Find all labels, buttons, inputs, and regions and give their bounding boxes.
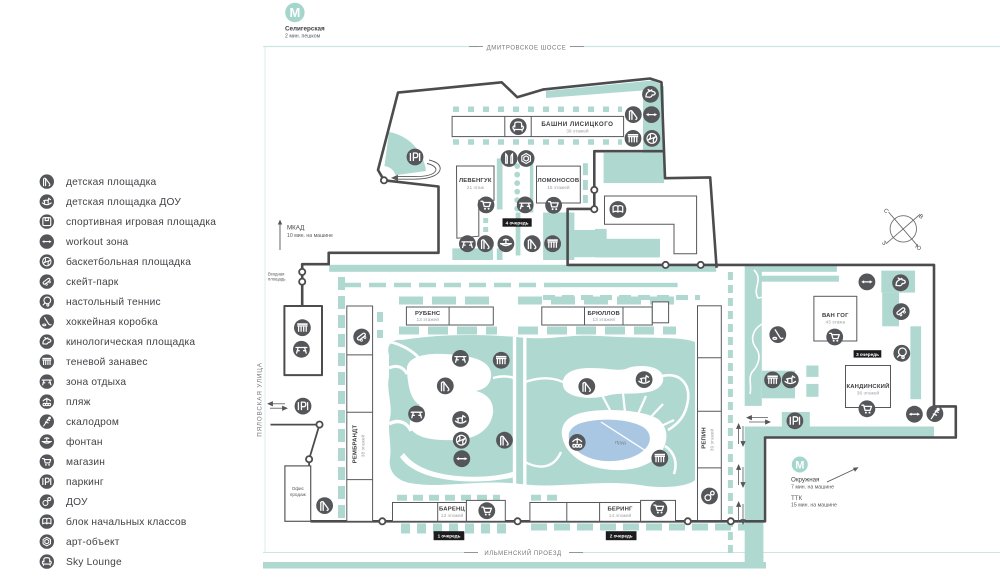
svg-text:РЕПИН: РЕПИН — [702, 427, 708, 449]
svg-text:БАРЕНЦ: БАРЕНЦ — [439, 507, 465, 513]
svg-text:фонтан: фонтан — [66, 436, 103, 448]
svg-text:ЛОМОНОСОВ: ЛОМОНОСОВ — [538, 178, 580, 184]
svg-text:баскетбольная площадка: баскетбольная площадка — [66, 256, 191, 268]
svg-text:1 очередь: 1 очередь — [438, 534, 461, 539]
svg-text:БАШНИ ЛИСИЦКОГО: БАШНИ ЛИСИЦКОГО — [541, 121, 613, 128]
svg-text:ИЛЬМЕНСКИЙ ПРОЕЗД: ИЛЬМЕНСКИЙ ПРОЕЗД — [484, 549, 561, 557]
svg-text:детская площадка: детская площадка — [66, 177, 157, 188]
svg-text:КАНДИНСКИЙ: КАНДИНСКИЙ — [846, 382, 889, 390]
svg-text:21 этаж: 21 этаж — [467, 185, 485, 191]
svg-text:БРЮЛЛОВ: БРЮЛЛОВ — [587, 311, 620, 317]
svg-text:паркинг: паркинг — [66, 477, 104, 488]
svg-text:15 мин. на машине: 15 мин. на машине — [791, 503, 837, 509]
svg-text:скалодром: скалодром — [66, 417, 119, 428]
svg-text:РЕМБРАНДТ: РЕМБРАНДТ — [353, 425, 359, 464]
svg-text:магазин: магазин — [66, 457, 105, 468]
svg-text:спортивная игровая площадка: спортивная игровая площадка — [66, 217, 216, 228]
svg-text:кинологическая площадка: кинологическая площадка — [66, 337, 195, 348]
svg-text:36 этажей: 36 этажей — [857, 389, 880, 396]
svg-text:Селигерская: Селигерская — [285, 26, 325, 33]
svg-text:14 этажей: 14 этажей — [609, 512, 632, 519]
svg-text:ВАН ГОГ: ВАН ГОГ — [822, 313, 849, 319]
svg-text:МКАД: МКАД — [287, 225, 305, 232]
svg-text:10 мин. на машине: 10 мин. на машине — [287, 233, 333, 239]
svg-text:ДМИТРОВСКОЕ ШОССЕ: ДМИТРОВСКОЕ ШОССЕ — [487, 45, 567, 51]
svg-text:15 этажей: 15 этажей — [547, 184, 570, 191]
svg-text:39 этажей: 39 этажей — [566, 128, 589, 135]
svg-text:38 этажей: 38 этажей — [360, 434, 367, 457]
svg-text:Пруд: Пруд — [615, 440, 626, 445]
svg-text:2 мин. пешком: 2 мин. пешком — [285, 34, 321, 40]
svg-text:Офис: Офис — [292, 486, 305, 491]
svg-text:ЛЕВЕНГУК: ЛЕВЕНГУК — [459, 178, 492, 184]
svg-text:Sky Lounge: Sky Lounge — [66, 557, 122, 568]
svg-text:39 этажей: 39 этажей — [709, 428, 716, 451]
svg-text:хоккейная коробка: хоккейная коробка — [66, 316, 158, 328]
svg-text:4 очередь: 4 очередь — [506, 220, 529, 225]
svg-text:7 мин. на машине: 7 мин. на машине — [791, 485, 834, 491]
svg-text:арт-объект: арт-объект — [66, 536, 120, 548]
svg-text:продаж: продаж — [290, 492, 307, 497]
svg-text:2 очередь: 2 очередь — [610, 534, 633, 539]
svg-text:3 очередь: 3 очередь — [856, 352, 879, 357]
svg-text:скейт-парк: скейт-парк — [66, 277, 119, 288]
svg-text:M: M — [795, 459, 804, 471]
svg-text:теневой занавес: теневой занавес — [66, 357, 148, 368]
svg-text:площадь: площадь — [268, 277, 286, 282]
svg-text:13 этажей: 13 этажей — [441, 512, 464, 519]
svg-text:ПЯЛОВСКАЯ УЛИЦА: ПЯЛОВСКАЯ УЛИЦА — [257, 362, 264, 437]
svg-text:детская площадка ДОУ: детская площадка ДОУ — [66, 197, 181, 208]
svg-text:РУБЕНС: РУБЕНС — [415, 311, 441, 317]
svg-text:13 этажей: 13 этажей — [417, 316, 440, 323]
svg-text:Окружная: Окружная — [791, 477, 819, 484]
svg-text:зона отдыха: зона отдыха — [66, 377, 126, 388]
svg-text:БЕРИНГ: БЕРИНГ — [607, 507, 633, 513]
svg-text:M: M — [289, 5, 300, 20]
svg-text:настольный теннис: настольный теннис — [66, 297, 161, 308]
svg-text:блок начальных классов: блок начальных классов — [66, 516, 187, 528]
svg-text:workout зона: workout зона — [65, 237, 129, 248]
svg-text:ТТК: ТТК — [791, 495, 803, 502]
svg-text:ДОУ: ДОУ — [66, 497, 88, 508]
svg-text:пляж: пляж — [66, 397, 91, 408]
svg-text:43 этажа: 43 этажа — [825, 319, 845, 325]
svg-text:13 этажей: 13 этажей — [593, 316, 616, 323]
